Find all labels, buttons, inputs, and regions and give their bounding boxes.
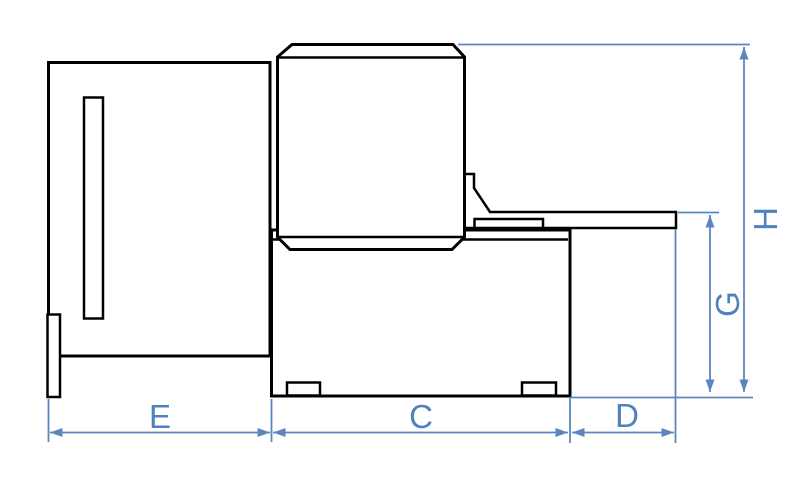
output-tray xyxy=(465,174,677,228)
dim-label-C: C xyxy=(409,398,433,435)
dim-label-E: E xyxy=(149,398,171,435)
left-cabinet-side-plate xyxy=(48,315,61,398)
base-foot-left xyxy=(287,383,320,396)
drawing-canvas: E C D G H xyxy=(0,0,800,480)
left-cabinet-slot xyxy=(84,98,103,319)
tray-handle-recess xyxy=(475,219,544,228)
base-foot-right xyxy=(522,383,556,396)
top-hood xyxy=(278,45,490,250)
dimension-drawing: E C D G H xyxy=(0,0,800,480)
left-cabinet-body xyxy=(49,63,271,357)
dim-label-H: H xyxy=(747,207,784,231)
left-cabinet xyxy=(48,63,271,398)
base-unit-body xyxy=(272,230,571,396)
base-unit xyxy=(272,230,571,396)
top-hood-body xyxy=(278,45,465,250)
dim-label-G: G xyxy=(709,291,746,317)
dim-label-D: D xyxy=(615,397,639,434)
machine-outline xyxy=(48,45,677,398)
